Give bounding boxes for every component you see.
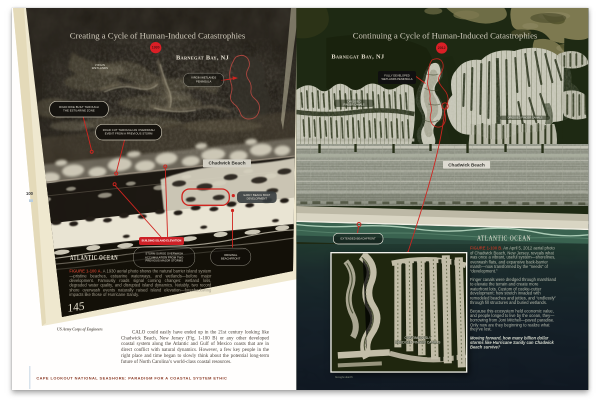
svg-text:DREDGED FINGER CANALS: DREDGED FINGER CANALS — [395, 341, 441, 345]
svg-text:CONTINUOUSLY: CONTINUOUSLY — [404, 336, 431, 340]
